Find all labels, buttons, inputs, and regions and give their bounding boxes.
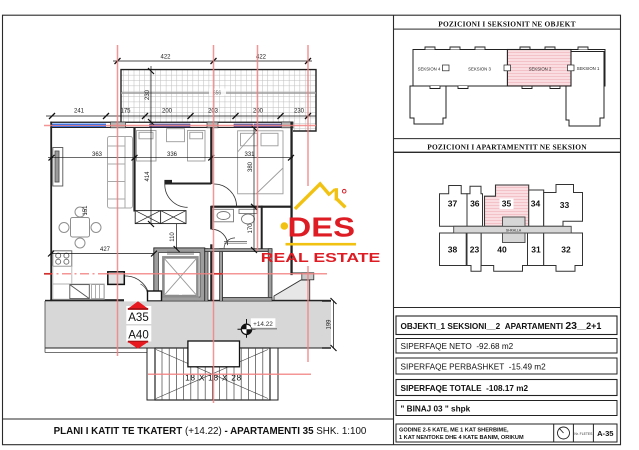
svg-text:POZICIONI I SEKSIONIT NE OBJEK: POZICIONI I SEKSIONIT NE OBJEKT <box>438 20 576 29</box>
svg-text:170: 170 <box>248 223 254 234</box>
svg-text:110: 110 <box>170 232 176 242</box>
svg-text:32: 32 <box>561 245 571 255</box>
svg-text:SIPERFAQE TOTALE -108.17 m2: SIPERFAQE TOTALE -108.17 m2 <box>401 384 529 393</box>
svg-text:336: 336 <box>167 152 178 158</box>
svg-text:331: 331 <box>244 152 255 158</box>
svg-text:REAL ESTATE: REAL ESTATE <box>261 251 381 265</box>
svg-text:POZICIONI I APARTAMENTIT NE SE: POZICIONI I APARTAMENTIT NE SEKSION <box>427 143 587 152</box>
svg-text:230: 230 <box>294 109 305 115</box>
svg-text:33: 33 <box>560 200 570 210</box>
svg-text:151: 151 <box>83 205 89 216</box>
svg-text:34: 34 <box>531 199 541 209</box>
svg-text:199: 199 <box>327 319 333 330</box>
svg-text:SEKSION 4: SEKSION 4 <box>418 67 441 72</box>
svg-text:OBJEKTI_1 SEKSIONI__2 APARTAM: OBJEKTI_1 SEKSIONI__2 APARTAMENTI 23__2+… <box>401 320 602 332</box>
svg-text:380: 380 <box>248 161 254 172</box>
svg-text:38: 38 <box>448 245 458 255</box>
svg-text:SHKALLA: SHKALLA <box>506 228 522 232</box>
svg-text:SIPERFAQE NETO -92.68 m2: SIPERFAQE NETO -92.68 m2 <box>401 342 514 351</box>
svg-text:427: 427 <box>100 247 111 253</box>
svg-text:23: 23 <box>470 245 480 255</box>
svg-text:241: 241 <box>74 109 85 115</box>
svg-text:" BINAJ 03 " shpk: " BINAJ 03 " shpk <box>401 405 471 414</box>
svg-text:230: 230 <box>145 89 151 100</box>
svg-text:200: 200 <box>162 109 173 115</box>
svg-text:414: 414 <box>145 171 151 182</box>
svg-text:+14.22: +14.22 <box>253 321 273 328</box>
svg-text:1 KAT NENTOKE DHE 4 KATE BANIM: 1 KAT NENTOKE DHE 4 KATE BANIM, ORIKUM <box>399 435 524 441</box>
svg-text:DES: DES <box>288 212 356 243</box>
svg-text:40: 40 <box>497 245 507 255</box>
svg-text:SEKSION 3: SEKSION 3 <box>468 67 491 72</box>
svg-text:A-35: A-35 <box>597 429 614 438</box>
svg-text:SIPERFAQE PERBASHKET -15.49 m: SIPERFAQE PERBASHKET -15.49 m2 <box>401 363 547 372</box>
svg-text:422: 422 <box>160 55 171 61</box>
svg-text:37: 37 <box>448 199 458 209</box>
svg-text:36: 36 <box>470 199 480 209</box>
svg-text:175: 175 <box>120 109 131 115</box>
svg-text:31: 31 <box>531 245 541 255</box>
svg-text:35: 35 <box>502 199 512 209</box>
svg-text:200: 200 <box>253 109 264 115</box>
svg-text:GODINE 2-5 KATE, ME 1 KAT SHER: GODINE 2-5 KATE, ME 1 KAT SHERBIME, <box>399 428 509 434</box>
svg-text:A35: A35 <box>128 312 148 324</box>
svg-text:363: 363 <box>92 152 103 158</box>
svg-text:SEKSION 1: SEKSION 1 <box>577 66 600 71</box>
svg-text:SEKSION 2: SEKSION 2 <box>529 67 552 72</box>
svg-text:Nr. FLETES: Nr. FLETES <box>574 432 593 436</box>
svg-text:A40: A40 <box>128 330 148 342</box>
svg-text:PLANI I KATIT TE TKATERT (+14: PLANI I KATIT TE TKATERT (+14.22) - APAR… <box>54 426 367 437</box>
